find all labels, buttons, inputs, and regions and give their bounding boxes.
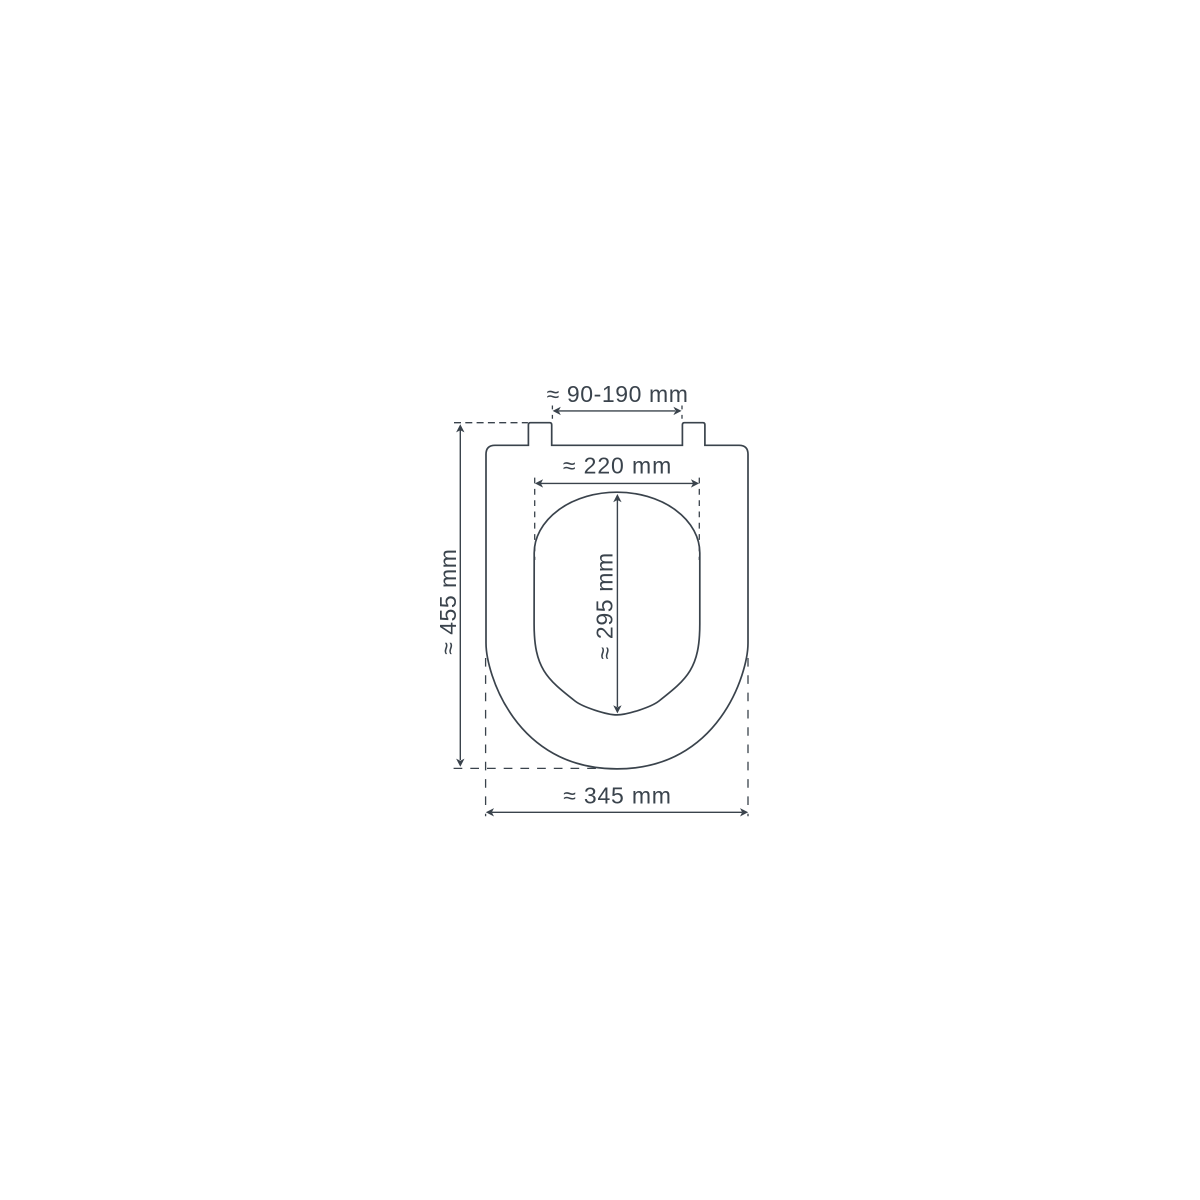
svg-text:≈ 220 mm: ≈ 220 mm (563, 452, 672, 478)
svg-text:≈ 295 mm: ≈ 295 mm (592, 552, 618, 659)
svg-text:≈ 90-190 mm: ≈ 90-190 mm (547, 381, 689, 407)
svg-text:≈ 345 mm: ≈ 345 mm (563, 783, 672, 809)
svg-text:≈ 455 mm: ≈ 455 mm (435, 549, 461, 655)
